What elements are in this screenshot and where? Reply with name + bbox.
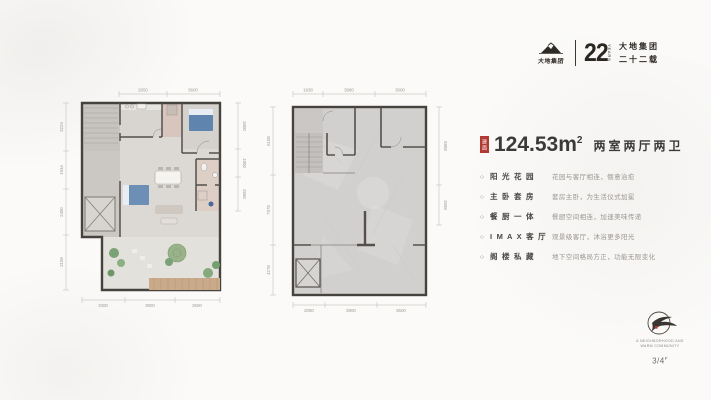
bullet-circle-icon: ○ xyxy=(480,194,490,201)
brand-calligraphy: 大地集团 xyxy=(538,56,565,65)
feature-desc: 套房主卧，为生活仪式加冕 xyxy=(552,191,635,201)
bullet-circle-icon: ○ xyxy=(480,234,490,241)
feature-label: I M A X 客 厅 xyxy=(490,231,552,242)
bullet-circle-icon: ○ xyxy=(480,214,490,221)
bed-pillow xyxy=(123,185,129,205)
basin xyxy=(213,173,218,178)
floorplan-basement: 1938 3980 3600 6108 7978 4278 5958 2558 … xyxy=(263,85,448,320)
svg-text:1934: 1934 xyxy=(59,165,64,175)
washer xyxy=(209,202,214,207)
svg-text:7978: 7978 xyxy=(266,205,271,215)
area-number: 124.53m xyxy=(494,133,577,156)
feature-item-imax-living: ○ I M A X 客 厅 观景级客厅，沐浴更多阳光 xyxy=(480,231,690,242)
feature-list: ○ 阳 光 花 园 花园与客厅相连，惬意治愈 ○ 主 卧 套 房 套房主卧，为生… xyxy=(480,171,690,262)
svg-text:3224: 3224 xyxy=(59,122,64,132)
svg-text:2558: 2558 xyxy=(443,200,448,210)
feature-label: 阳 光 花 园 xyxy=(490,171,552,182)
kitchen-floor xyxy=(120,110,162,137)
svg-text:3108: 3108 xyxy=(59,257,64,267)
seal-ring xyxy=(648,310,672,334)
poster-canvas: 大地集团 22 YEARS 大地集团 二十二载 2650 3600 3224 1… xyxy=(0,0,711,400)
brand-years: 22 YEARS xyxy=(583,41,612,66)
bullet-circle-icon: ○ xyxy=(480,254,490,261)
dims-right: 3300 1800 2550 xyxy=(235,103,247,211)
svg-text:3900: 3900 xyxy=(145,303,155,308)
brand-divider xyxy=(575,40,576,66)
layout-text: 两室两厅两卫 xyxy=(593,137,683,154)
dining-table xyxy=(155,171,181,184)
feature-item-private-basement: ○ 阁 楼 私 藏 地下空间格局方正，功能无限变化 xyxy=(480,251,690,262)
stairwell xyxy=(82,103,120,151)
floor-number: 3/4 xyxy=(652,356,665,365)
floor-superscript: F xyxy=(665,356,668,361)
unit-title: 建面 124.53m2 两室两厅两卫 xyxy=(480,134,690,155)
area-superscript: 2 xyxy=(577,135,583,146)
brand-mark: 大地集团 xyxy=(534,42,568,65)
floorplan-upper-floor: 2650 3600 3224 1934 2450 3108 3300 1800 … xyxy=(57,85,247,310)
seal-caption-line2: WARM COMMUNITY xyxy=(630,344,690,349)
svg-text:2650: 2650 xyxy=(138,88,148,93)
feature-label: 餐 厨 一 体 xyxy=(490,211,552,222)
svg-text:4278: 4278 xyxy=(266,265,271,275)
dims-top: 1938 3980 3600 xyxy=(293,88,426,98)
feature-desc: 地下空间格局方正，功能无限变化 xyxy=(552,251,656,261)
community-seal: A NEIGHBORHOOD AND WARM COMMUNITY 3/4F xyxy=(630,310,690,365)
svg-text:5958: 5958 xyxy=(443,141,448,151)
svg-text:2080: 2080 xyxy=(304,308,314,313)
feature-item-sun-garden: ○ 阳 光 花 园 花园与客厅相连，惬意治愈 xyxy=(480,171,690,182)
svg-text:3600: 3600 xyxy=(188,88,198,93)
dims-bottom: 3300 3900 3600 xyxy=(82,297,220,308)
dims-bottom: 2080 3900 3600 xyxy=(293,302,426,313)
svg-text:3600: 3600 xyxy=(192,303,202,308)
elevator xyxy=(296,259,320,287)
elevator xyxy=(85,197,115,231)
swallow-seal-icon xyxy=(646,310,680,336)
unit-info: 建面 124.53m2 两室两厅两卫 ○ 阳 光 花 园 花园与客厅相连，惬意治… xyxy=(480,134,690,271)
tub xyxy=(167,105,177,115)
seal-caption: A NEIGHBORHOOD AND WARM COMMUNITY xyxy=(630,339,690,350)
dims-left: 6108 7978 4278 xyxy=(266,107,276,295)
wood-deck xyxy=(149,278,220,290)
svg-text:3900: 3900 xyxy=(346,308,356,313)
dims-left: 3224 1934 2450 3108 xyxy=(59,103,69,290)
brand-text-column: 大地集团 二十二载 xyxy=(619,41,659,65)
feature-label: 阁 楼 私 藏 xyxy=(490,251,552,262)
svg-text:3300: 3300 xyxy=(242,121,247,131)
room-top-left xyxy=(295,109,323,133)
feature-item-kitchen-dining: ○ 餐 厨 一 体 餐厨空间相连，加速美味传递 xyxy=(480,211,690,222)
svg-text:6108: 6108 xyxy=(266,136,271,146)
brand-line-2: 二十二载 xyxy=(619,54,659,65)
feature-desc: 餐厨空间相连，加速美味传递 xyxy=(552,211,642,221)
brand-lockup: 大地集团 22 YEARS 大地集团 二十二载 xyxy=(534,40,659,66)
mountain-pavilion-icon xyxy=(538,42,564,55)
svg-text:3600: 3600 xyxy=(396,308,406,313)
bullet-circle-icon: ○ xyxy=(480,174,490,181)
feature-desc: 花园与客厅相连，惬意治愈 xyxy=(552,171,635,181)
toilet xyxy=(201,163,207,171)
brand-line-1: 大地集团 xyxy=(619,41,659,52)
svg-text:2450: 2450 xyxy=(59,207,64,217)
coffee-table xyxy=(161,218,177,224)
feature-label: 主 卧 套 房 xyxy=(490,191,552,202)
photo-watermark xyxy=(357,177,389,209)
svg-text:3980: 3980 xyxy=(344,88,354,93)
area-value: 124.53m2 xyxy=(494,134,582,155)
svg-text:1938: 1938 xyxy=(303,88,313,93)
bed-pillow xyxy=(189,109,213,115)
years-number: 22 xyxy=(584,41,608,66)
dims-top: 2650 3600 xyxy=(119,88,220,98)
area-tag: 建面 xyxy=(480,136,489,153)
floor-indicator: 3/4F xyxy=(630,356,690,366)
svg-text:3300: 3300 xyxy=(98,303,108,308)
dims-right: 5958 2558 xyxy=(436,107,448,225)
svg-text:2550: 2550 xyxy=(242,189,247,199)
feature-desc: 观景级客厅，沐浴更多阳光 xyxy=(552,231,635,241)
kitchen-sink xyxy=(137,104,146,109)
sofa xyxy=(155,205,183,214)
svg-text:3600: 3600 xyxy=(395,88,405,93)
feature-item-master-suite: ○ 主 卧 套 房 套房主卧，为生活仪式加冕 xyxy=(480,191,690,202)
svg-text:1800: 1800 xyxy=(242,158,247,168)
